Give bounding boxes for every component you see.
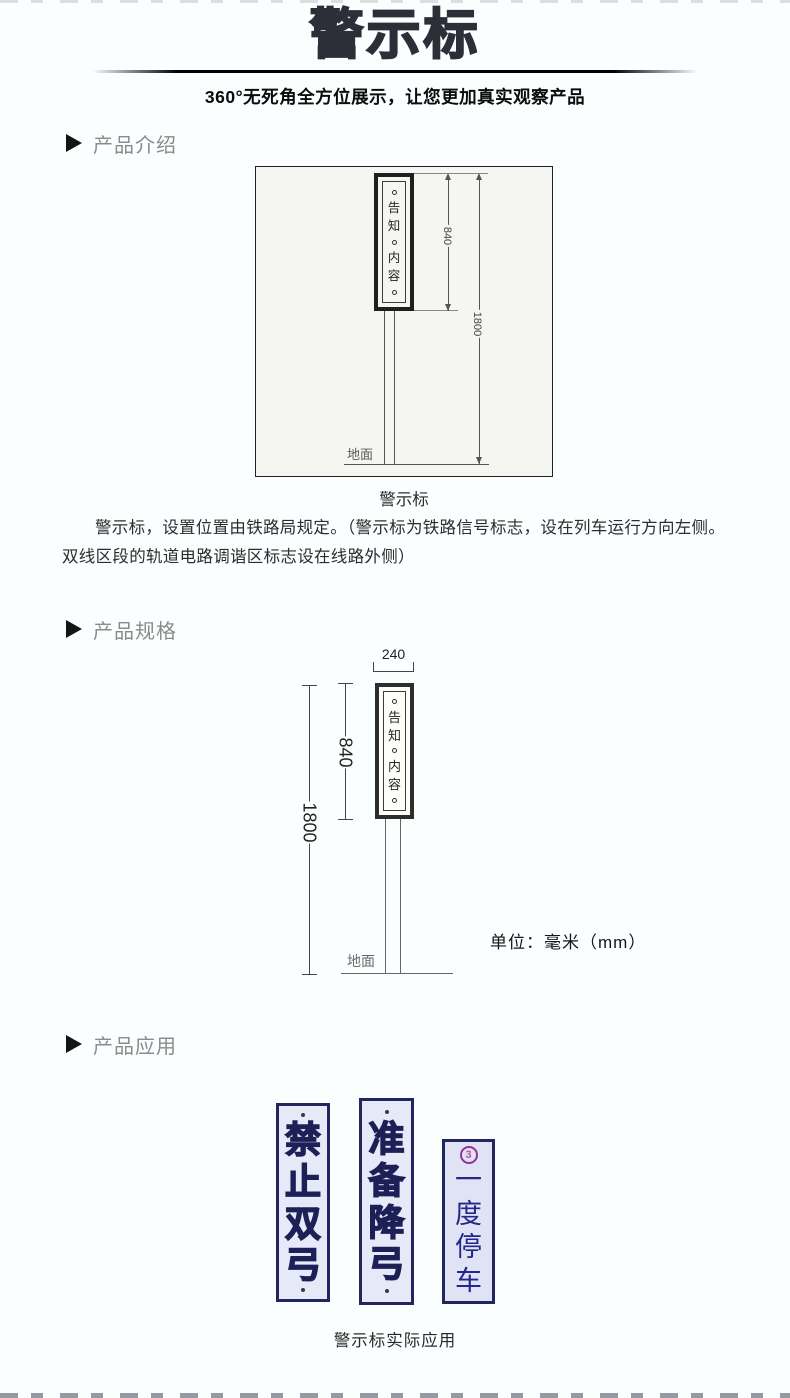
section-header-app: 产品应用: [66, 1031, 177, 1057]
section-label-app: 产品应用: [93, 1030, 177, 1059]
dimension-label-840: 840: [333, 736, 358, 768]
screw-hole-icon: [301, 1113, 305, 1117]
sign-text-top: 告知: [388, 711, 401, 742]
intro-paragraph: 警示标，设置位置由铁路局规定。（警示标为铁路信号标志，设在列车运行方向左侧。双线…: [62, 514, 730, 572]
arrow-up-icon: [476, 173, 482, 180]
extension-line: [414, 310, 458, 311]
dimension-label-1800: 1800: [297, 801, 322, 843]
drawing-sign-plate: 告知 内容: [374, 173, 414, 311]
spec-technical-drawing: 240 告知 内容 地面 840 1800: [270, 645, 520, 980]
application-caption: 警示标实际应用: [0, 1327, 790, 1351]
drawing-sign-face: 告知 内容: [383, 691, 406, 811]
ground-line: [341, 973, 453, 974]
circled-number-emblem-icon: 3: [460, 1146, 478, 1164]
dimension-cap: [302, 974, 317, 975]
drawing-sign-face: 告知 内容: [382, 181, 406, 303]
drawing-pole: [385, 819, 401, 973]
sign-text-bottom: 内容: [388, 760, 401, 791]
section-header-spec: 产品规格: [66, 616, 177, 642]
section-label-intro: 产品介绍: [93, 129, 177, 158]
title-divider: [92, 70, 698, 73]
unit-note: 单位：毫米（mm）: [490, 928, 646, 953]
screw-hole-icon: [392, 699, 397, 704]
sign-text-bottom: 内容: [388, 252, 401, 282]
intro-technical-drawing: 告知 内容 地面 840 1800: [255, 166, 553, 477]
dimension-label-240: 240: [373, 646, 414, 662]
dimension-line-240: [373, 671, 414, 672]
dimension-tick: [373, 662, 374, 672]
drawing-pole: [384, 311, 395, 464]
ground-line: [344, 464, 489, 465]
dimension-cap: [338, 819, 353, 820]
dimension-cap: [338, 683, 353, 684]
top-edge-decoration: [0, 0, 790, 3]
screw-hole-icon: [392, 240, 397, 245]
application-sign-jinzhi-shuanggong: 禁止双弓: [276, 1103, 330, 1302]
application-sign-yidu-tingche: 3 一度停车: [442, 1139, 495, 1304]
section-label-spec: 产品规格: [93, 615, 177, 644]
screw-hole-icon: [392, 190, 397, 195]
sign-text: 禁止双弓: [285, 1121, 321, 1284]
page-subtitle: 360°无死角全方位展示，让您更加真实观察产品: [0, 84, 790, 109]
ground-label: 地面: [347, 951, 375, 971]
triangle-bullet-icon: [66, 1035, 82, 1053]
sign-text-top: 告知: [388, 202, 401, 232]
screw-hole-icon: [392, 798, 397, 803]
application-sign-zhunbei-jianggong: 准备降弓: [359, 1098, 414, 1305]
bottom-edge-decoration: [0, 1393, 790, 1398]
section-header-intro: 产品介绍: [66, 130, 177, 156]
drawing-sign-plate: 告知 内容: [375, 683, 414, 819]
arrow-up-icon: [445, 173, 451, 180]
triangle-bullet-icon: [66, 134, 82, 152]
product-detail-page: 警示标 360°无死角全方位展示，让您更加真实观察产品 产品介绍 告知 内容 地…: [0, 0, 790, 1398]
dimension-tick: [413, 662, 414, 672]
dimension-cap: [302, 685, 317, 686]
screw-hole-icon: [301, 1288, 305, 1292]
page-title: 警示标: [0, 4, 790, 66]
screw-hole-icon: [392, 748, 397, 753]
dimension-label-1800: 1800: [470, 310, 484, 338]
triangle-bullet-icon: [66, 620, 82, 638]
dimension-label-840: 840: [440, 225, 454, 247]
screw-hole-icon: [392, 290, 397, 295]
intro-drawing-caption: 警示标: [255, 486, 553, 510]
ground-label: 地面: [347, 444, 373, 463]
screw-hole-icon: [385, 1110, 389, 1114]
sign-text: 准备降弓: [368, 1120, 404, 1283]
sign-text: 一度停车: [455, 1166, 482, 1297]
arrow-down-icon: [445, 304, 451, 311]
arrow-down-icon: [476, 457, 482, 464]
screw-hole-icon: [385, 1289, 389, 1293]
